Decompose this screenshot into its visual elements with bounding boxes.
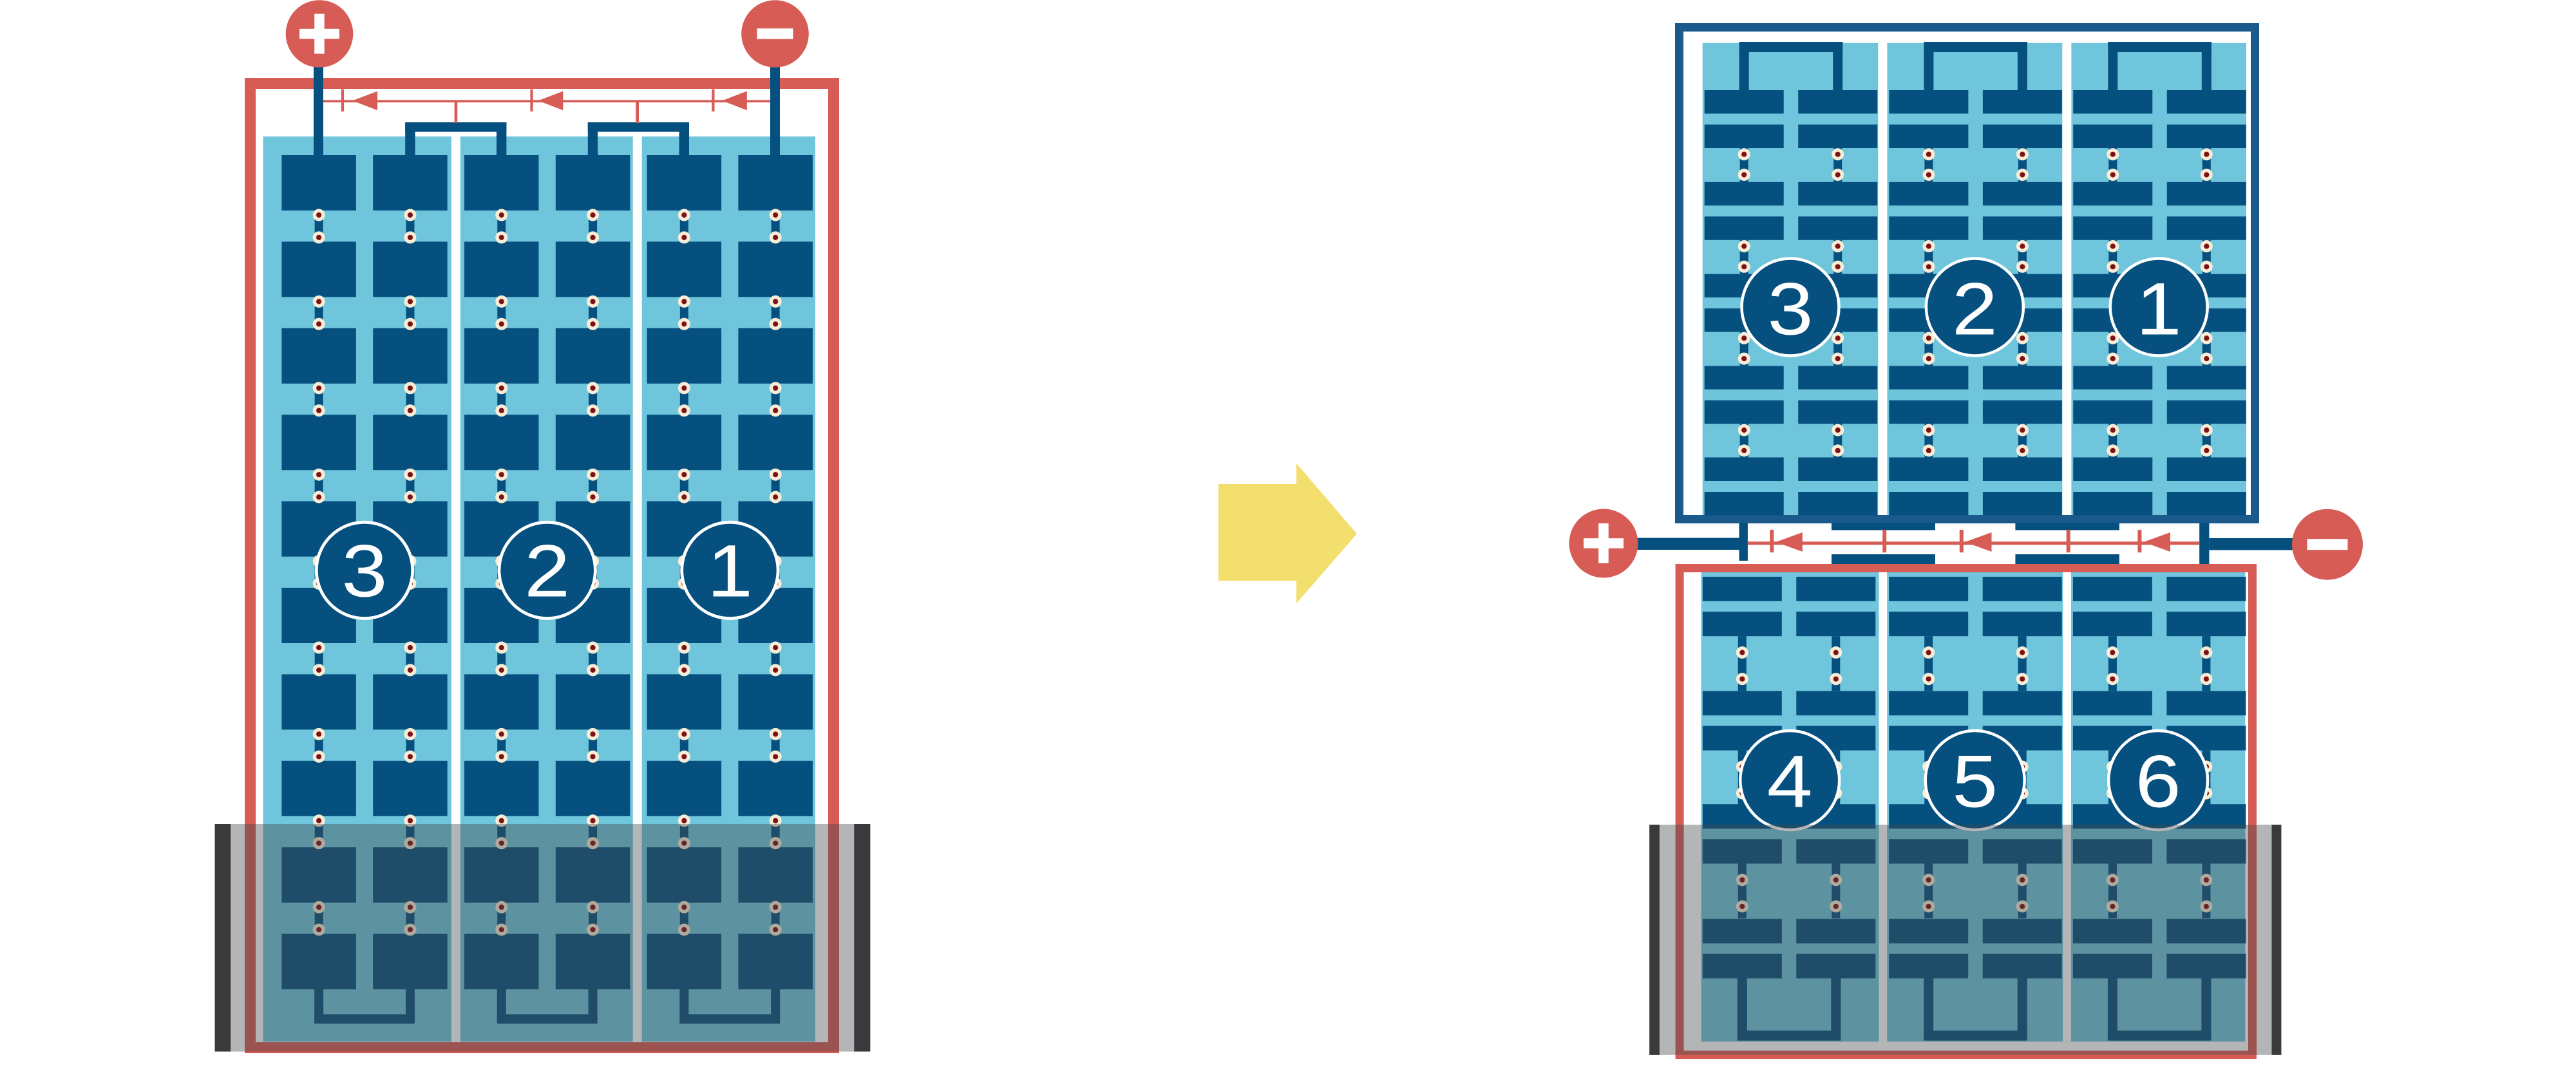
svg-text:3: 3 (1768, 268, 1814, 351)
svg-text:1: 1 (707, 530, 753, 613)
svg-text:5: 5 (1952, 741, 1998, 823)
svg-text:1: 1 (2136, 268, 2182, 351)
svg-text:2: 2 (1952, 268, 1998, 351)
svg-text:4: 4 (1767, 741, 1813, 823)
svg-text:6: 6 (2136, 741, 2181, 823)
svg-text:2: 2 (524, 530, 570, 613)
svg-text:3: 3 (342, 530, 388, 613)
